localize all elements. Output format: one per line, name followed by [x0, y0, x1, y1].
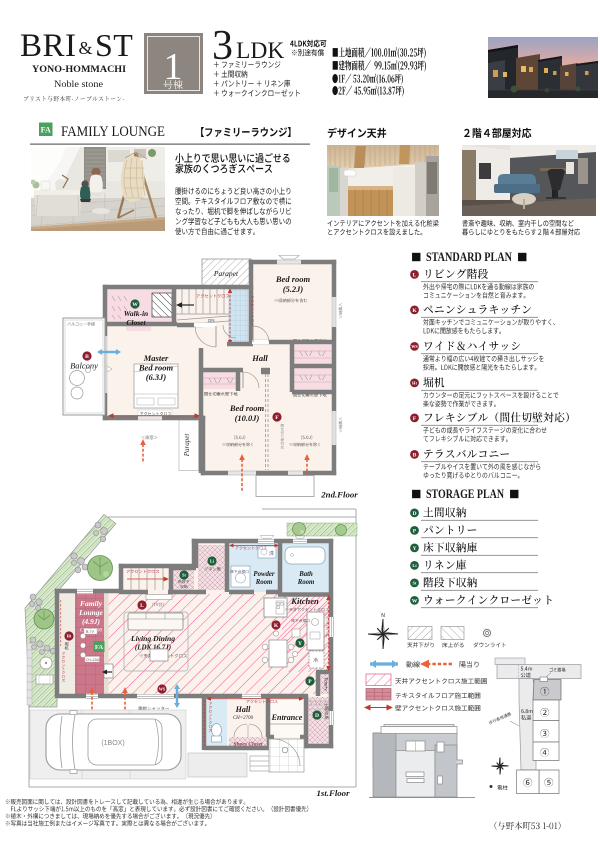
svg-text:Master: Master [143, 353, 169, 363]
svg-text:W: W [132, 302, 138, 308]
svg-text:P: P [308, 679, 312, 685]
svg-text:Kitchen: Kitchen [290, 596, 319, 606]
svg-text:St: St [413, 580, 417, 585]
svg-text:W: W [412, 598, 418, 604]
svg-text:STANDARD PLAN: STANDARD PLAN [426, 249, 512, 264]
svg-text:Room: Room [297, 579, 315, 586]
svg-text:Bath: Bath [298, 571, 313, 578]
svg-text:Lounge: Lounge [78, 608, 103, 617]
svg-text:B: B [85, 354, 89, 360]
svg-text:Bed room: Bed room [229, 403, 265, 413]
svg-text:P: P [413, 528, 417, 534]
svg-text:Walk-in: Walk-in [124, 309, 148, 318]
svg-text:STORAGE PLAN: STORAGE PLAN [426, 486, 504, 501]
svg-text:Pantry: Pantry [323, 676, 328, 691]
svg-text:YONO-HOMMACHI: YONO-HOMMACHI [32, 65, 126, 75]
svg-text:(5.2J): (5.2J) [283, 284, 304, 294]
svg-text:K: K [274, 623, 279, 629]
svg-text:WS: WS [159, 687, 166, 692]
svg-text:&: & [79, 38, 93, 58]
svg-text:(10.0J): (10.0J) [235, 413, 260, 423]
svg-text:BRI: BRI [20, 28, 77, 64]
svg-text:DN: DN [208, 318, 215, 323]
svg-text:FA: FA [95, 644, 103, 651]
svg-text:L: L [140, 603, 144, 609]
svg-text:2nd.Floor: 2nd.Floor [320, 490, 358, 500]
svg-text:Powder: Powder [253, 571, 274, 578]
svg-text:FA: FA [41, 126, 51, 135]
svg-text:B: B [413, 452, 417, 458]
svg-text:Ht: Ht [412, 380, 417, 385]
svg-text:Y: Y [298, 641, 302, 647]
svg-text:Entrance: Entrance [271, 713, 303, 722]
svg-text:F: F [413, 416, 417, 422]
svg-text:Parapet: Parapet [213, 269, 239, 278]
svg-text:Y: Y [412, 546, 416, 552]
svg-text:Bed room: Bed room [275, 274, 311, 284]
svg-text:Room: Room [255, 579, 273, 586]
svg-text:Hall: Hall [235, 705, 251, 714]
svg-text:K: K [412, 308, 417, 314]
svg-text:Living Dining: Living Dining [130, 634, 175, 643]
svg-text:(6.3J): (6.3J) [146, 372, 167, 382]
svg-text:FAMILY LOUNGE: FAMILY LOUNGE [61, 124, 165, 140]
svg-text:CH=2700: CH=2700 [233, 716, 254, 721]
svg-text:WS: WS [411, 344, 418, 349]
svg-text:N: N [381, 613, 385, 619]
svg-text:Hall: Hall [251, 353, 268, 363]
svg-text:(1BOX): (1BOX) [101, 740, 124, 747]
svg-text:ST: ST [95, 27, 133, 63]
svg-text:1st.Floor: 1st.Floor [317, 788, 351, 798]
svg-text:(4.9J): (4.9J) [82, 617, 101, 626]
svg-text:Ht: Ht [67, 634, 72, 639]
svg-text:D: D [315, 713, 319, 719]
svg-text:LDK: LDK [236, 38, 284, 64]
svg-text:Noble stone: Noble stone [54, 80, 103, 90]
svg-text:Family: Family [80, 599, 103, 608]
svg-text:L: L [413, 272, 417, 278]
svg-text:Parapet: Parapet [183, 433, 191, 458]
svg-text:Balcony: Balcony [70, 361, 98, 371]
svg-text:D: D [412, 511, 416, 517]
svg-text:Bed room: Bed room [138, 363, 174, 373]
svg-text:Closet: Closet [126, 318, 146, 327]
svg-text:F: F [275, 415, 279, 421]
svg-text:St: St [182, 573, 186, 578]
